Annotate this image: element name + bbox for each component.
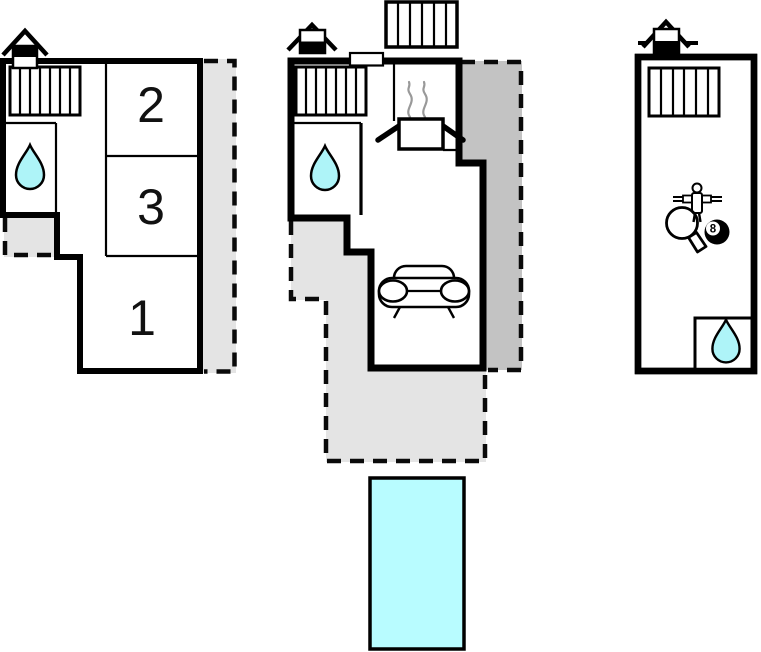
foosball-head: [693, 184, 702, 193]
terrace-corner: [4, 215, 56, 257]
foosball-icon: [673, 184, 722, 223]
chimney-icon: [288, 25, 336, 53]
left-unit: 2 3 1: [3, 31, 236, 373]
foosball-torso: [692, 193, 702, 213]
terrace-strip: [203, 59, 236, 373]
billiard-ball-icon: 8: [705, 220, 730, 245]
sofa-arm: [441, 281, 469, 302]
radiator-icon: [296, 67, 366, 115]
chimney-icon: [638, 22, 698, 53]
floor-plan: 2 3 1: [0, 0, 761, 652]
right-unit: 8: [638, 22, 754, 371]
bathroom: [695, 318, 752, 370]
room-label: 3: [137, 179, 165, 235]
pot-body: [399, 119, 443, 149]
roof-hatch: [386, 2, 457, 47]
window: [350, 53, 383, 66]
room-label: 2: [137, 77, 165, 133]
room-label: 1: [128, 290, 156, 346]
floor-plan-page: 2 3 1: [0, 0, 761, 652]
radiator-icon: [10, 67, 80, 115]
terrace-fill: [4, 215, 55, 257]
ball-number: 8: [710, 224, 717, 236]
paddle-handle: [689, 233, 707, 253]
sofa-arm: [379, 281, 407, 302]
chimney-body-dark: [13, 46, 37, 57]
radiator-icon: [649, 68, 719, 116]
swimming-pool: [370, 478, 464, 649]
chimney-body-dark: [300, 42, 325, 54]
middle-unit: [288, 2, 522, 649]
terrace-fill: [203, 59, 236, 373]
chimney-body-dark: [654, 41, 679, 53]
